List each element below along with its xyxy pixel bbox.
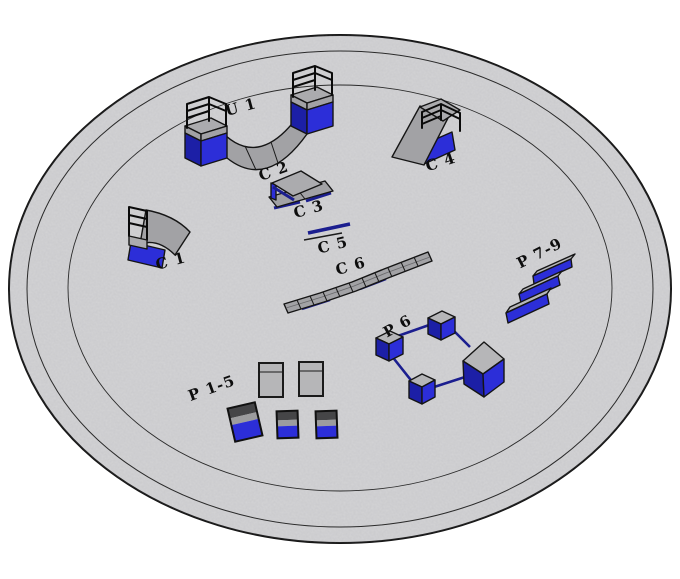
p6-cube-small-bottom [409,374,435,404]
p1-5-block-2 [277,411,299,439]
box-body [259,363,283,397]
p1-5-tall-box-1 [259,363,283,397]
render-canvas: U 1 C 4 C 1 C 2 C 3 C 5 [0,0,680,579]
block-blue-band [316,426,337,439]
block-blue-band [277,426,298,439]
p1-5-tall-box-2 [299,362,323,396]
p1-5-block-3 [316,411,338,439]
box-body [299,362,323,396]
layout-diagram: U 1 C 4 C 1 C 2 C 3 C 5 [0,0,680,579]
block-mid-band [316,420,337,427]
block-mid-band [277,420,298,427]
p6-cube-small-top [428,311,455,340]
